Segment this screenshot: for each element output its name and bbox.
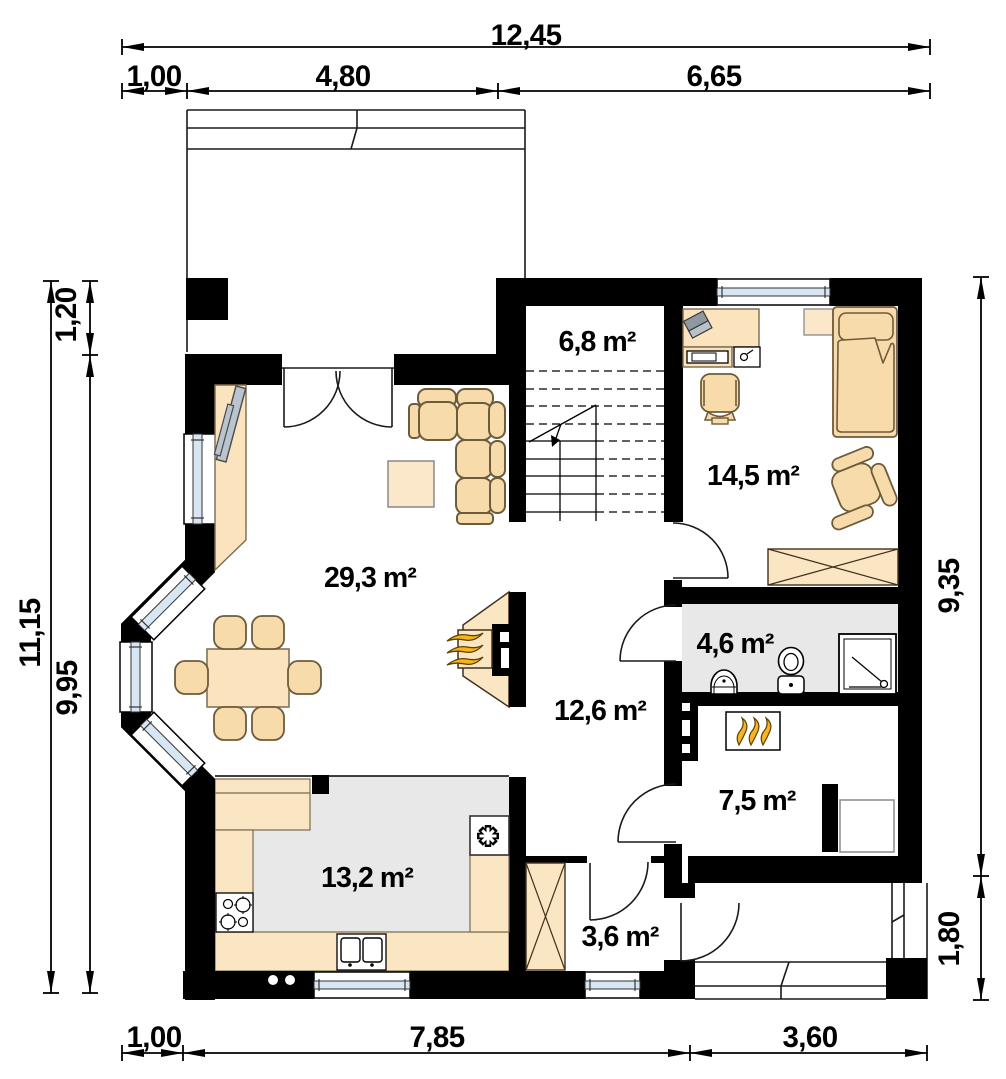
svg-text:11,15: 11,15 <box>14 598 47 667</box>
svg-text:29,3 m²: 29,3 m² <box>324 562 416 594</box>
svg-text:1,00: 1,00 <box>126 1021 181 1054</box>
svg-text:13,2 m²: 13,2 m² <box>321 862 413 894</box>
svg-text:3,6 m²: 3,6 m² <box>582 921 659 953</box>
svg-text:9,35: 9,35 <box>933 558 966 613</box>
svg-text:1,80: 1,80 <box>933 911 966 966</box>
svg-text:7,5 m²: 7,5 m² <box>719 785 796 817</box>
svg-text:12,6 m²: 12,6 m² <box>554 695 646 727</box>
svg-text:1,20: 1,20 <box>50 287 83 342</box>
svg-text:6,8 m²: 6,8 m² <box>559 326 636 358</box>
svg-text:6,65: 6,65 <box>686 60 741 93</box>
svg-text:9,95: 9,95 <box>51 660 84 715</box>
svg-text:7,85: 7,85 <box>409 1021 464 1054</box>
svg-text:14,5 m²: 14,5 m² <box>707 460 799 492</box>
svg-text:3,60: 3,60 <box>782 1021 837 1054</box>
svg-text:1,00: 1,00 <box>126 60 181 93</box>
svg-text:4,6 m²: 4,6 m² <box>697 628 774 660</box>
svg-text:12,45: 12,45 <box>491 19 562 52</box>
svg-text:4,80: 4,80 <box>315 60 370 93</box>
